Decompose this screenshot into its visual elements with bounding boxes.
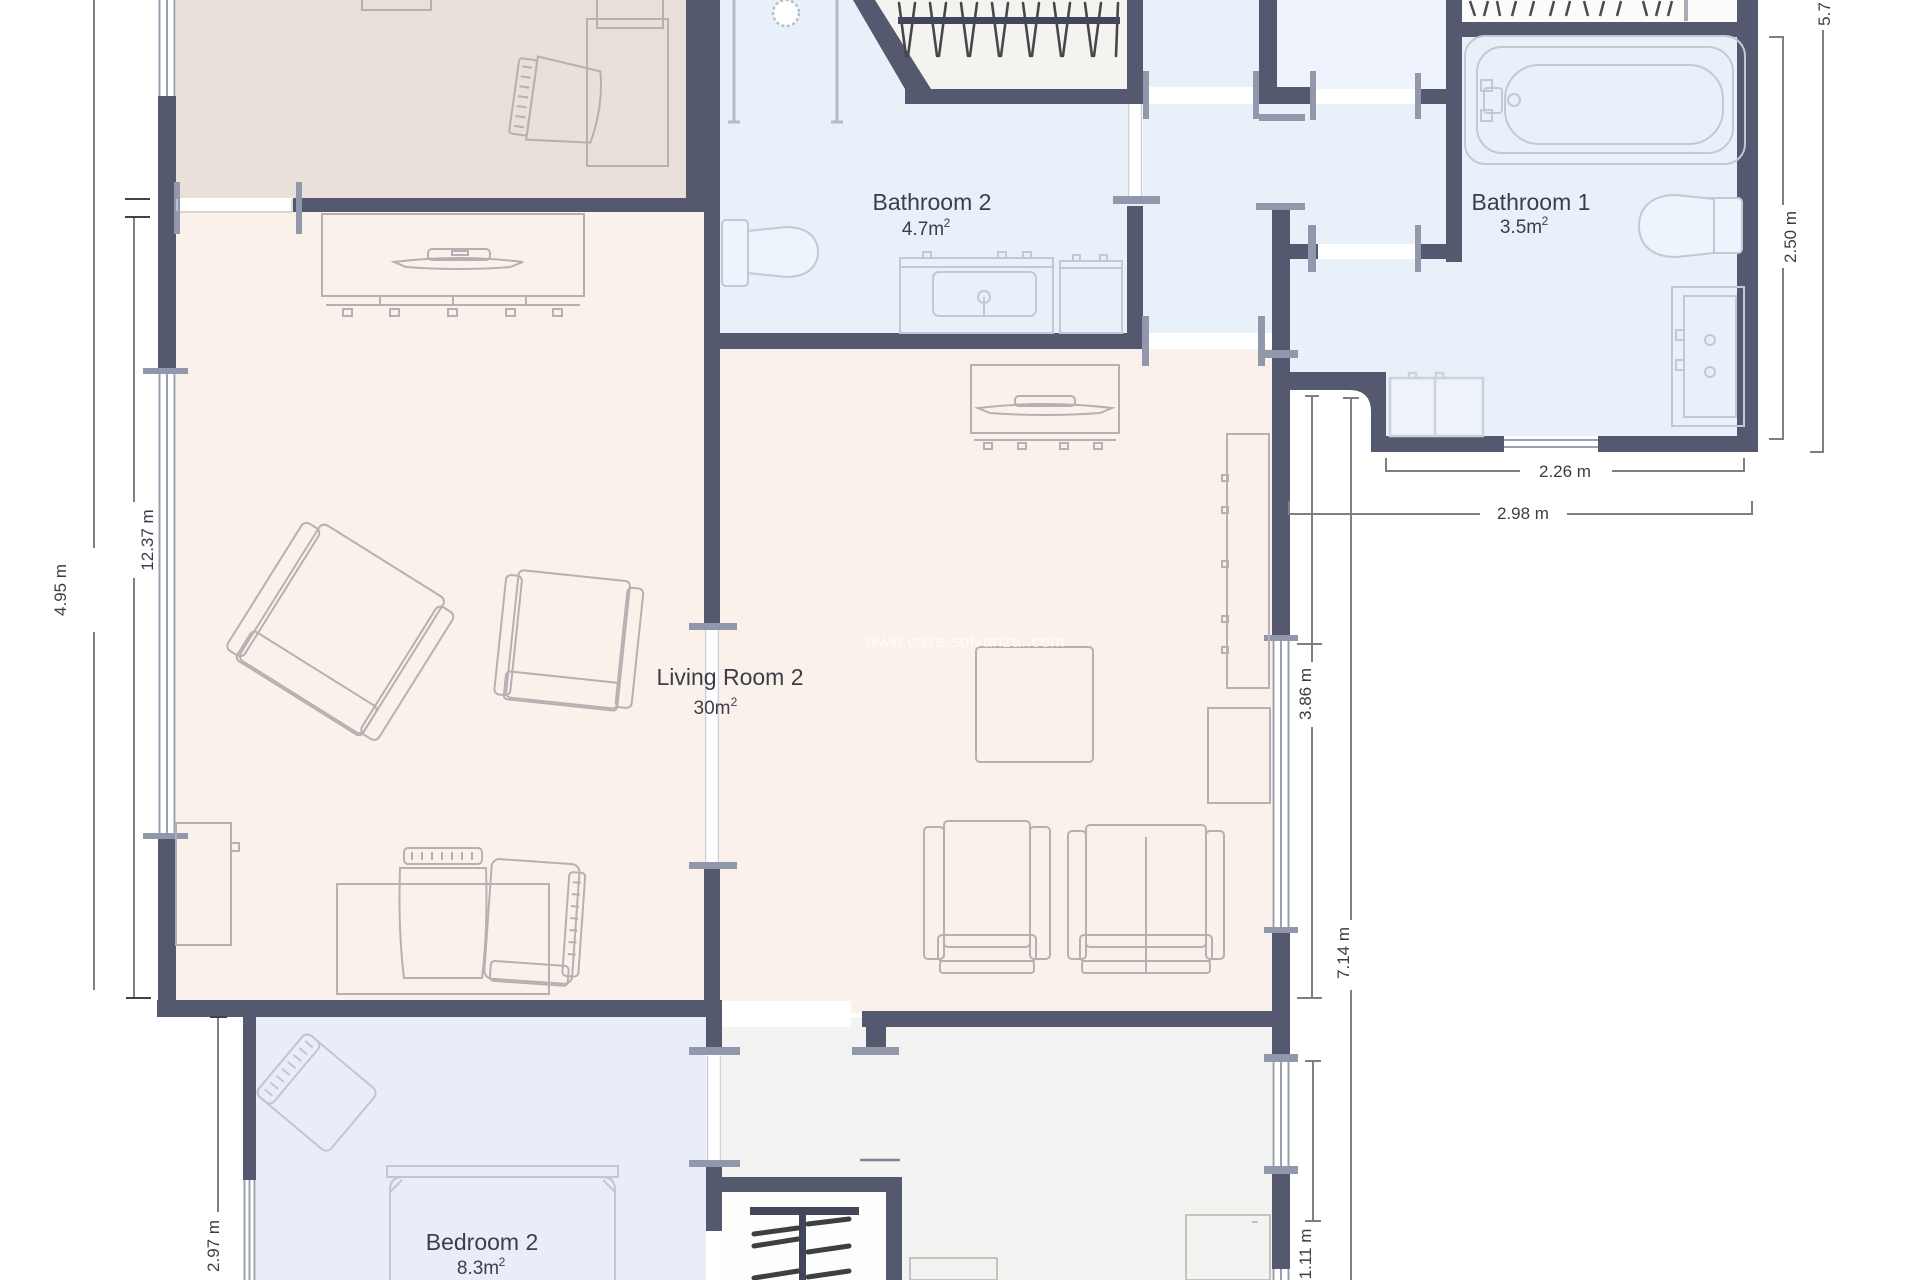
svg-text:2.98 m: 2.98 m (1497, 504, 1549, 523)
svg-text:Bathroom 1: Bathroom 1 (1472, 189, 1591, 215)
svg-text:2: 2 (1542, 214, 1549, 228)
svg-text:3.5m: 3.5m (1500, 217, 1542, 238)
svg-text:2.97 m: 2.97 m (204, 1220, 223, 1272)
svg-text:Living Room 2: Living Room 2 (656, 664, 803, 690)
svg-text:30m: 30m (694, 698, 731, 719)
svg-text:12.37 m: 12.37 m (138, 509, 157, 570)
svg-text:4.95 m: 4.95 m (51, 564, 70, 616)
svg-text:Bathroom 2: Bathroom 2 (873, 189, 992, 215)
svg-text:2.50 m: 2.50 m (1781, 211, 1800, 263)
svg-text:8.3m: 8.3m (457, 1258, 499, 1279)
svg-text:www.casa-solvanza..com: www.casa-solvanza..com (864, 632, 1065, 651)
svg-text:1.11 m: 1.11 m (1296, 1229, 1315, 1280)
svg-text:3.86 m: 3.86 m (1296, 668, 1315, 720)
svg-text:2: 2 (944, 216, 951, 230)
svg-text:4.7m: 4.7m (902, 219, 944, 240)
svg-text:2.26 m: 2.26 m (1539, 462, 1591, 481)
svg-text:2: 2 (499, 1255, 506, 1269)
svg-text:Bedroom 2: Bedroom 2 (426, 1229, 539, 1255)
svg-text:5.7: 5.7 (1815, 2, 1834, 26)
svg-text:7.14 m: 7.14 m (1334, 927, 1353, 979)
svg-text:2: 2 (731, 695, 738, 709)
